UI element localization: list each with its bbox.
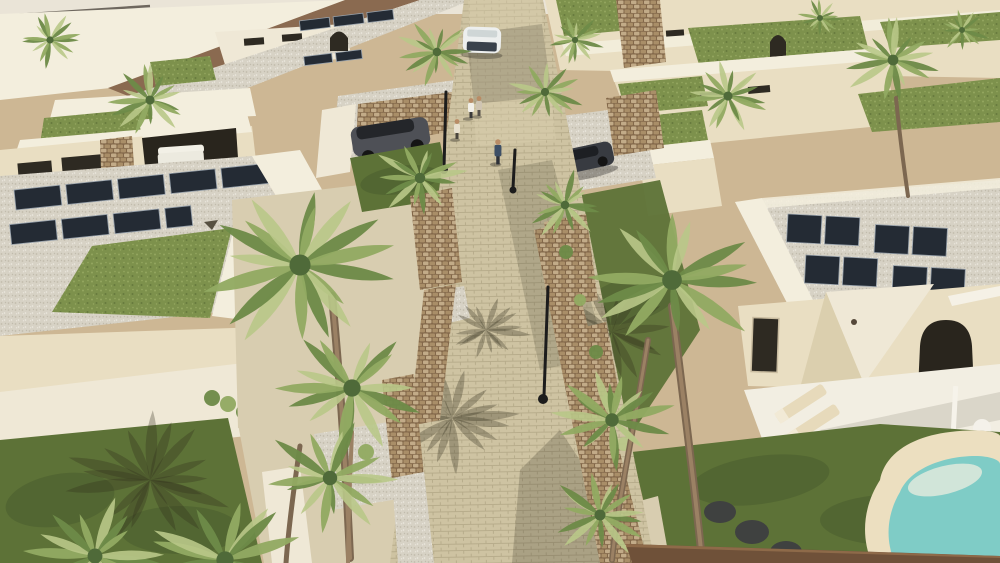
window-slit <box>666 29 684 36</box>
car-windshield <box>467 41 497 51</box>
agave-plant <box>358 444 374 460</box>
pouf <box>735 520 769 544</box>
pouf <box>704 501 736 523</box>
shrub <box>204 390 220 406</box>
wall-lamp <box>851 319 857 325</box>
white-car <box>460 26 503 59</box>
window-tall <box>751 318 779 373</box>
shrub <box>574 294 586 306</box>
window-slit <box>244 37 264 45</box>
shrub <box>589 345 603 359</box>
villa-development-render <box>0 0 1000 563</box>
car-rear-window <box>467 29 497 37</box>
stone-wall <box>606 90 664 156</box>
rendering-viewport: Aerial photorealistic 3D architectural r… <box>0 0 1000 563</box>
shrub <box>559 245 573 259</box>
shrub <box>220 396 236 412</box>
stone-pillar <box>616 0 666 68</box>
garden-wall <box>316 104 356 178</box>
